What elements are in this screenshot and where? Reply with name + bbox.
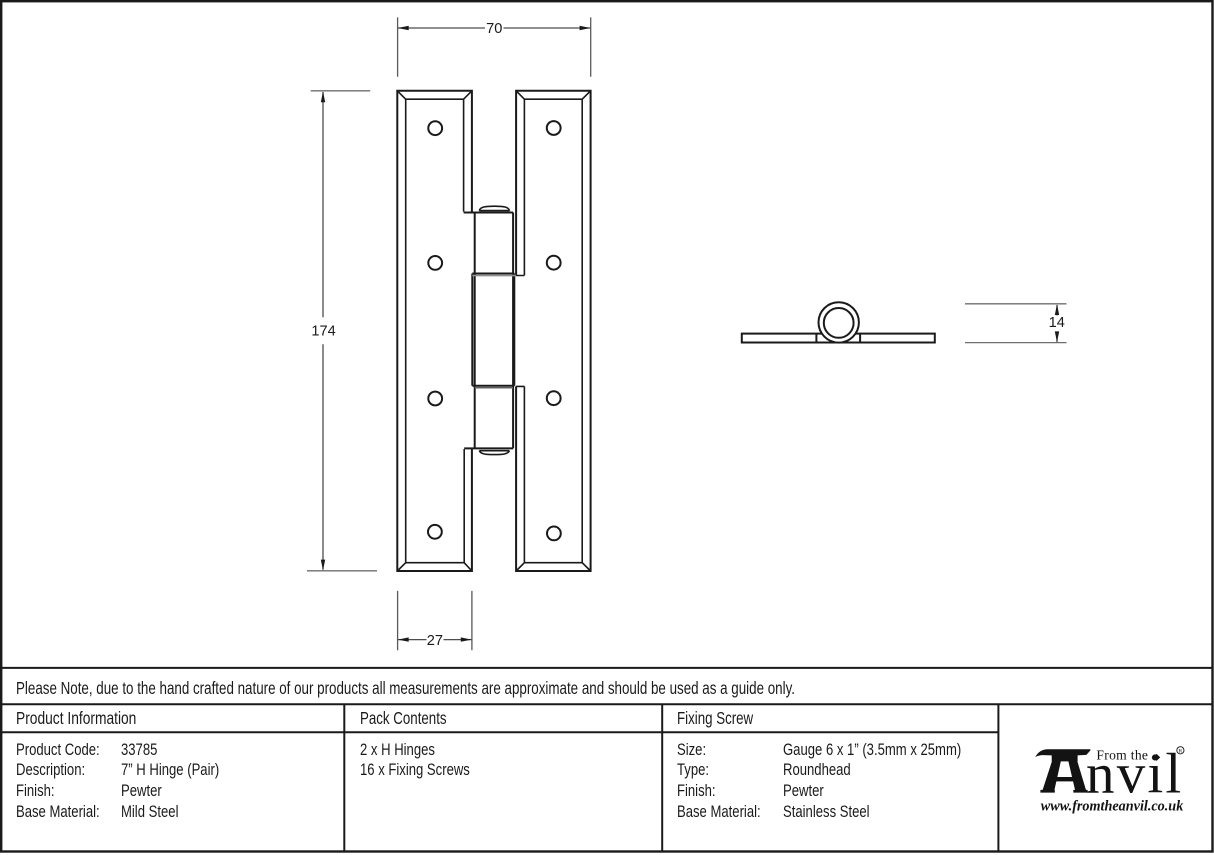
svg-text:From the: From the (1096, 748, 1148, 763)
svg-text:R: R (1179, 748, 1183, 754)
svg-text:14: 14 (1049, 315, 1065, 331)
svg-text:70: 70 (486, 21, 502, 37)
svg-text:174: 174 (311, 324, 335, 340)
svg-text:www.fromtheanvil.co.uk: www.fromtheanvil.co.uk (1041, 797, 1184, 814)
svg-text:27: 27 (427, 633, 443, 649)
